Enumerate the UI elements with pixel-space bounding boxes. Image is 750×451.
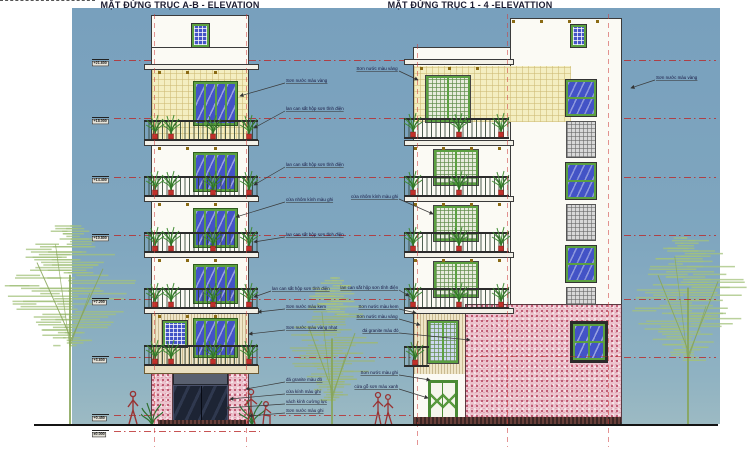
person-icon	[123, 390, 143, 426]
level-value: +10.800	[92, 236, 108, 241]
annotation-label: Sơn nước màu ghi	[286, 408, 324, 414]
level-marker-tick	[92, 298, 109, 299]
plant-icon	[240, 282, 258, 308]
people-pair-icon	[369, 391, 397, 427]
level-marker-tick	[92, 356, 109, 357]
parapet-line	[152, 47, 248, 48]
wall-ticks	[158, 203, 238, 206]
stair-louver-panel	[566, 287, 596, 305]
level-marker-tick	[92, 59, 109, 60]
level-marker: +7.200	[92, 293, 120, 311]
level-value: +18.000	[92, 119, 108, 124]
wall-ticks	[414, 203, 502, 206]
annotation-label: cửa nhôm kính màu ghi	[286, 197, 333, 203]
roof-slab	[144, 64, 259, 70]
storefront-glass	[173, 385, 228, 425]
wall-ticks	[158, 147, 238, 150]
annotation-label: đá granite màu đỏ	[286, 377, 322, 383]
level-marker: ±0.000	[92, 425, 119, 443]
plinth-band	[414, 417, 621, 424]
annotation-label: Sơn nước màu vàng nhạt	[286, 325, 337, 331]
wall-ticks	[414, 259, 502, 262]
wall-ticks	[420, 67, 500, 70]
annotation-label: Sơn nước màu vàng	[286, 78, 327, 84]
plant-icon	[450, 170, 468, 196]
level-value: +21.600	[92, 61, 108, 66]
roof-slab-right	[404, 59, 514, 65]
plant-icon	[204, 339, 222, 365]
plant-icon	[162, 114, 180, 140]
level-marker: +3.600	[92, 351, 120, 369]
level-marker: +18.000	[92, 112, 124, 130]
floor1-window-side	[428, 321, 458, 363]
level-value: +0.450	[92, 416, 106, 421]
elevation-title-left: MẶT ĐỨNG TRỤC A-B - ELEVATION	[75, 0, 285, 10]
plant-icon	[450, 226, 468, 252]
balcony-railing	[404, 232, 509, 253]
annotation-label: Sơn nước màu vàng	[357, 314, 398, 320]
annotation-label: vách kính cường lực	[286, 399, 327, 405]
axis-line-3	[608, 14, 609, 447]
axis-line-B	[246, 14, 247, 447]
annotation-label: Sơn nước màu vàng	[656, 75, 697, 81]
level-marker-tick	[92, 176, 109, 177]
balcony-railing	[404, 118, 509, 139]
axis-line-1	[417, 44, 418, 447]
drawing-canvas: MẶT ĐỨNG TRỤC A-B - ELEVATION MẶT ĐỨNG T…	[0, 0, 750, 451]
plant-icon	[162, 282, 180, 308]
annotation-label: lan can sắt hộp sơn tĩnh điện	[286, 232, 344, 238]
axis-line-A	[154, 14, 155, 447]
stair-louver-panel	[566, 204, 596, 241]
ground-panel-door	[428, 380, 458, 422]
roof-window	[192, 24, 209, 47]
plant-icon	[404, 282, 422, 308]
plant-icon	[204, 170, 222, 196]
annotation-label: Sơn nước màu ghi	[360, 370, 398, 376]
level-value: +3.600	[92, 358, 106, 363]
wall-ticks	[158, 315, 238, 318]
balcony-railing	[144, 176, 258, 197]
level-marker: +21.600	[92, 54, 124, 72]
level-value: +7.200	[92, 300, 106, 305]
level-line	[114, 431, 260, 432]
plant-icon	[450, 282, 468, 308]
tower-parapet-window	[571, 25, 586, 47]
stair-window	[566, 80, 596, 116]
annotation-label: Sơn nước màu vàng	[357, 66, 398, 72]
storefront-header	[173, 373, 228, 385]
annotation-label: cửa nhôm kính màu ghi	[351, 194, 398, 200]
annotation-label: lan can sắt hộp sơn tĩnh điện	[340, 285, 398, 291]
wall-ticks	[512, 20, 618, 23]
plant-icon	[240, 226, 258, 252]
stair-louver-panel	[566, 121, 596, 158]
plant-icon	[404, 170, 422, 196]
balcony-railing	[404, 176, 509, 197]
level-marker: +10.800	[92, 229, 124, 247]
plant-icon	[204, 114, 222, 140]
balcony-railing	[144, 232, 258, 253]
level-value: ±0.000	[92, 432, 106, 437]
level-marker-tick	[92, 117, 109, 118]
level-line-overlay	[465, 356, 621, 357]
balcony-railing	[404, 288, 509, 309]
stair-window	[566, 163, 596, 199]
people-pair-icon	[243, 388, 275, 426]
balcony-railing	[144, 120, 258, 141]
wall-ticks	[414, 147, 502, 150]
elevation-title-right: MẶT ĐỨNG TRỤC 1 - 4 -ELEVATTION	[365, 0, 575, 10]
plant-icon	[406, 340, 424, 366]
slab-1	[144, 365, 259, 374]
ground-line	[34, 424, 718, 426]
plant-icon	[204, 282, 222, 308]
wall-ticks	[158, 71, 238, 74]
axis-line-2	[507, 14, 508, 447]
level-marker-tick	[92, 234, 109, 235]
slab-right	[404, 140, 514, 146]
annotation-label: cửa gỗ sơn màu xanh	[354, 384, 398, 390]
plant-icon	[162, 170, 180, 196]
annotation-label: Sơn nước màu kem	[286, 304, 326, 310]
plant-icon	[450, 112, 468, 138]
plant-icon	[404, 226, 422, 252]
annotation-label: cửa kính màu ghi	[286, 389, 321, 395]
plant-icon	[162, 339, 180, 365]
plant-icon	[162, 226, 180, 252]
plant-icon	[240, 170, 258, 196]
stair-window	[566, 246, 596, 282]
level-value: +14.400	[92, 178, 108, 183]
annotation-label: lan can sắt hộp sơn tĩnh điện	[286, 162, 344, 168]
wall-ticks	[158, 259, 238, 262]
plant-icon	[404, 112, 422, 138]
level-marker-tick	[92, 430, 109, 431]
annotation-label: đá granite màu đỏ	[362, 328, 398, 334]
balcony-railing	[144, 345, 258, 366]
shrub-icon	[141, 399, 163, 426]
plant-icon	[204, 226, 222, 252]
annotation-label: lan can sắt hộp sơn tĩnh điện	[286, 106, 344, 112]
level-marker: +14.400	[92, 171, 124, 189]
annotation-label: Sơn nước màu kem	[358, 304, 398, 310]
annotation-label: lan can sắt hộp sơn tĩnh điện	[272, 286, 330, 292]
plant-icon	[240, 114, 258, 140]
plant-icon	[240, 339, 258, 365]
balcony-railing	[144, 288, 258, 309]
level-marker-tick	[92, 414, 109, 415]
